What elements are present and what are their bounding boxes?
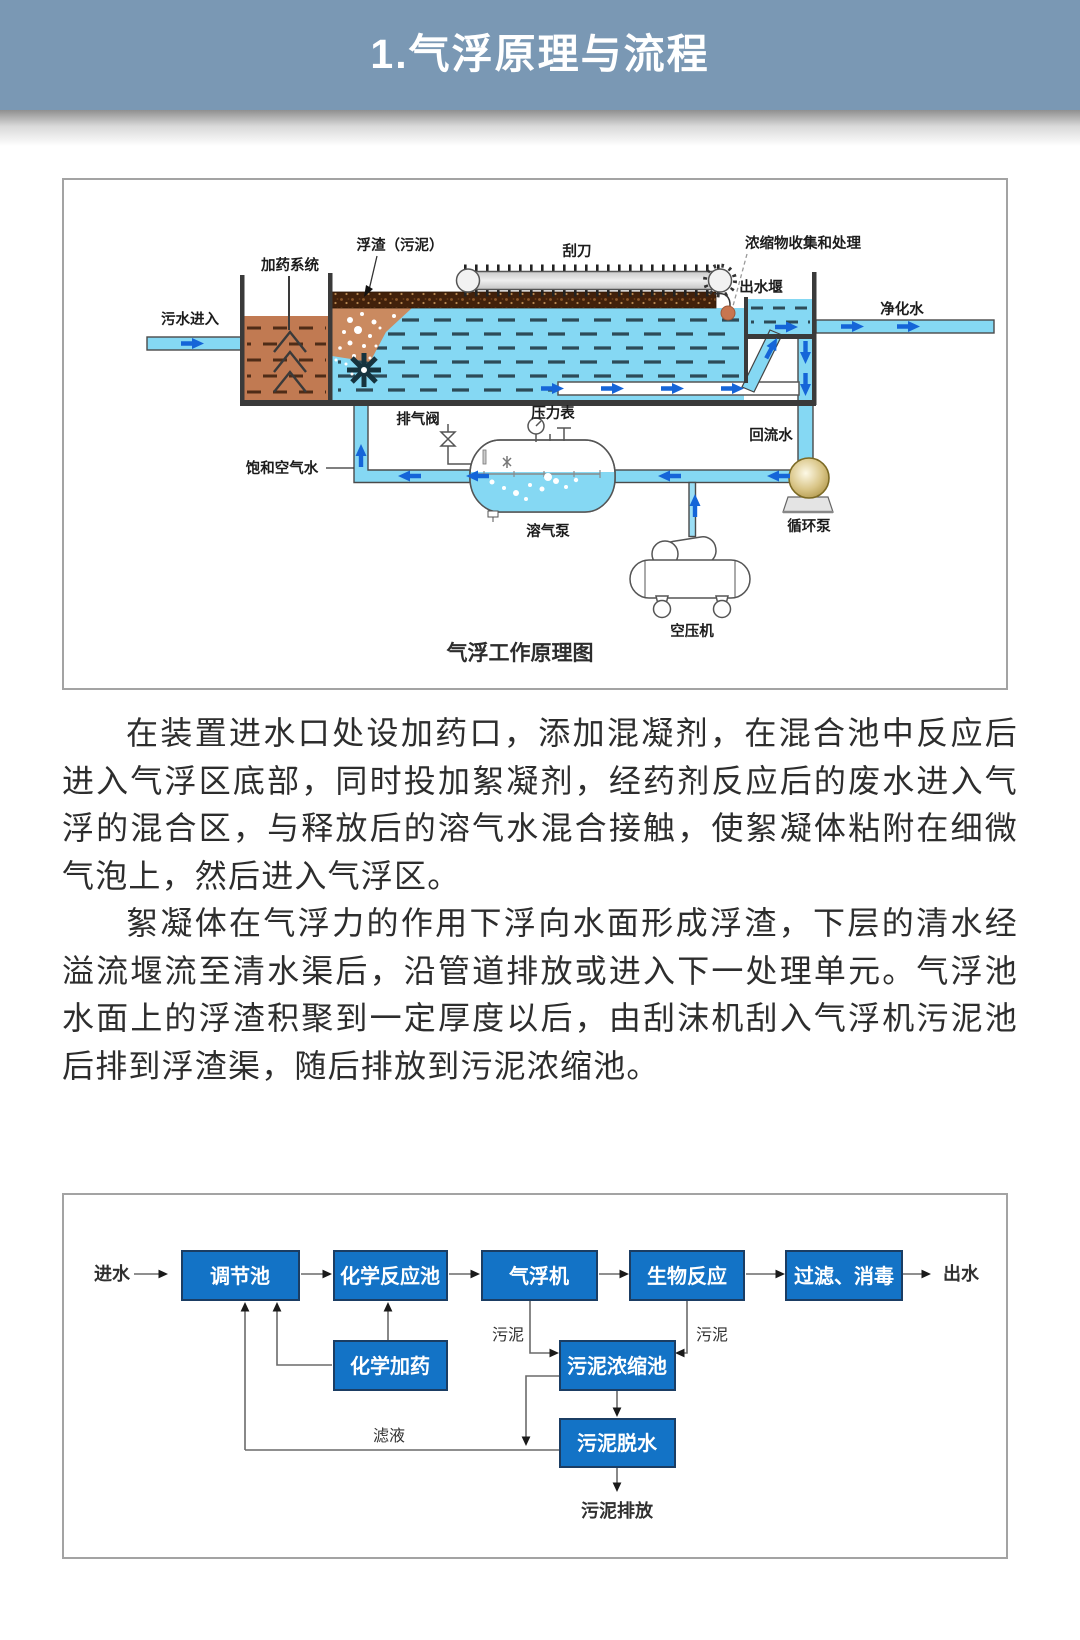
label-exhaust-valve: 排气阀: [396, 410, 440, 428]
label-sludge-left: 污泥: [492, 1326, 524, 1344]
air-releaser-icon: [347, 353, 381, 387]
svg-text:过滤、消毒: 过滤、消毒: [794, 1264, 894, 1288]
label-circulation-pump: 循环泵: [787, 517, 831, 535]
air-compressor-icon: [630, 535, 750, 618]
svg-text:调节池: 调节池: [210, 1264, 270, 1288]
node-chemical-reaction-tank: 化学反应池: [334, 1251, 447, 1300]
node-sludge-thickener: 污泥浓缩池: [560, 1341, 675, 1390]
body-text: 在装置进水口处设加药口，添加混凝剂，在混合池中反应后进入气浮区底部，同时投加絮凝…: [62, 710, 1018, 1090]
svg-text:污泥浓缩池: 污泥浓缩池: [567, 1354, 667, 1378]
flowchart-nodes: 调节池 化学反应池 气浮机 生物反应 过滤、消毒 化学加药: [182, 1251, 902, 1467]
label-return-water: 回流水: [749, 426, 793, 444]
principle-diagram: 污水进入 加药系统 浮渣（污泥） 刮刀 浓缩物收集和处理 出水堰 净化水 饱和空…: [64, 180, 1006, 688]
svg-text:污泥脱水: 污泥脱水: [577, 1431, 658, 1455]
svg-text:化学加药: 化学加药: [350, 1354, 430, 1378]
label-scum: 浮渣（污泥）: [357, 236, 444, 254]
label-air-compressor: 空压机: [670, 622, 714, 640]
process-flowchart: 调节池 化学反应池 气浮机 生物反应 过滤、消毒 化学加药: [64, 1195, 1006, 1557]
title-bar-shadow: [0, 110, 1080, 146]
scraper-icon: [457, 265, 736, 297]
paragraph-1: 在装置进水口处设加药口，添加混凝剂，在混合池中反应后进入气浮区底部，同时投加絮凝…: [62, 710, 1018, 900]
label-pressure-gauge: 压力表: [531, 404, 575, 422]
node-biological-reaction: 生物反应: [630, 1251, 744, 1300]
label-outlet-weir: 出水堰: [739, 278, 783, 296]
label-saturated-air-water: 饱和空气水: [246, 459, 319, 477]
node-filtration-disinfection: 过滤、消毒: [786, 1251, 902, 1300]
document-page: 1.气浮原理与流程: [0, 0, 1080, 1640]
flowchart-arrowheads: [159, 1270, 932, 1492]
paragraph-2: 絮凝体在气浮力的作用下浮向水面形成浮渣，下层的清水经溢流堰流至清水渠后，沿管道排…: [62, 900, 1018, 1090]
node-chemical-dosing: 化学加药: [334, 1341, 447, 1390]
label-purified-water: 净化水: [880, 300, 924, 318]
node-daf-unit: 气浮机: [482, 1251, 597, 1300]
label-sewage-inlet: 污水进入: [161, 310, 219, 328]
process-flowchart-figure: 调节池 化学反应池 气浮机 生物反应 过滤、消毒 化学加药: [62, 1193, 1008, 1559]
label-filtrate: 滤液: [373, 1427, 405, 1445]
circulation-pump-icon: [783, 458, 833, 512]
svg-text:生物反应: 生物反应: [647, 1264, 727, 1288]
label-concentrate-handling: 浓缩物收集和处理: [745, 234, 861, 252]
outlet-chamber-water: [748, 299, 812, 336]
page-title: 1.气浮原理与流程: [0, 0, 1080, 108]
label-outlet: 出水: [943, 1263, 980, 1284]
title-bar: 1.气浮原理与流程: [0, 0, 1080, 110]
dissolved-air-tank-icon: [470, 440, 615, 522]
principle-diagram-figure: 污水进入 加药系统 浮渣（污泥） 刮刀 浓缩物收集和处理 出水堰 净化水 饱和空…: [62, 178, 1008, 690]
concentrate-ball: [721, 306, 735, 320]
label-dosing-system: 加药系统: [260, 256, 319, 274]
node-regulating-tank: 调节池: [182, 1251, 299, 1300]
flowchart-connectors: [134, 1274, 922, 1485]
label-sludge-discharge: 污泥排放: [581, 1500, 654, 1521]
svg-text:气浮机: 气浮机: [508, 1264, 569, 1288]
label-inlet: 进水: [94, 1263, 131, 1284]
svg-text:化学反应池: 化学反应池: [340, 1264, 440, 1288]
label-sludge-right: 污泥: [696, 1326, 728, 1344]
figure-caption: 气浮工作原理图: [446, 641, 594, 665]
exhaust-valve-icon: [441, 424, 472, 464]
node-sludge-dewatering: 污泥脱水: [560, 1419, 675, 1467]
label-scraper: 刮刀: [563, 242, 592, 260]
label-dissolved-air-tank: 溶气泵: [526, 522, 570, 540]
